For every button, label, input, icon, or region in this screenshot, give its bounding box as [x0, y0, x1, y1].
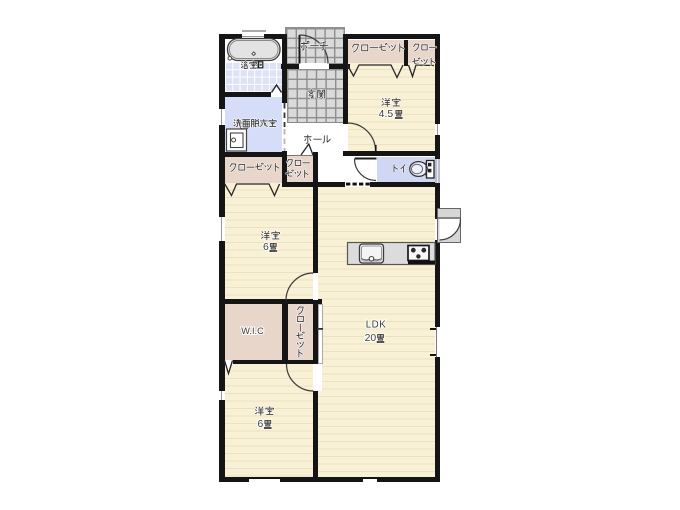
svg-text:20: 20: [365, 333, 377, 344]
svg-text:W.I.C: W.I.C: [241, 326, 264, 336]
svg-text:4.5: 4.5: [379, 109, 394, 120]
svg-text:6: 6: [263, 242, 269, 253]
svg-text:LDK: LDK: [366, 320, 387, 331]
svg-text:6: 6: [258, 419, 264, 430]
